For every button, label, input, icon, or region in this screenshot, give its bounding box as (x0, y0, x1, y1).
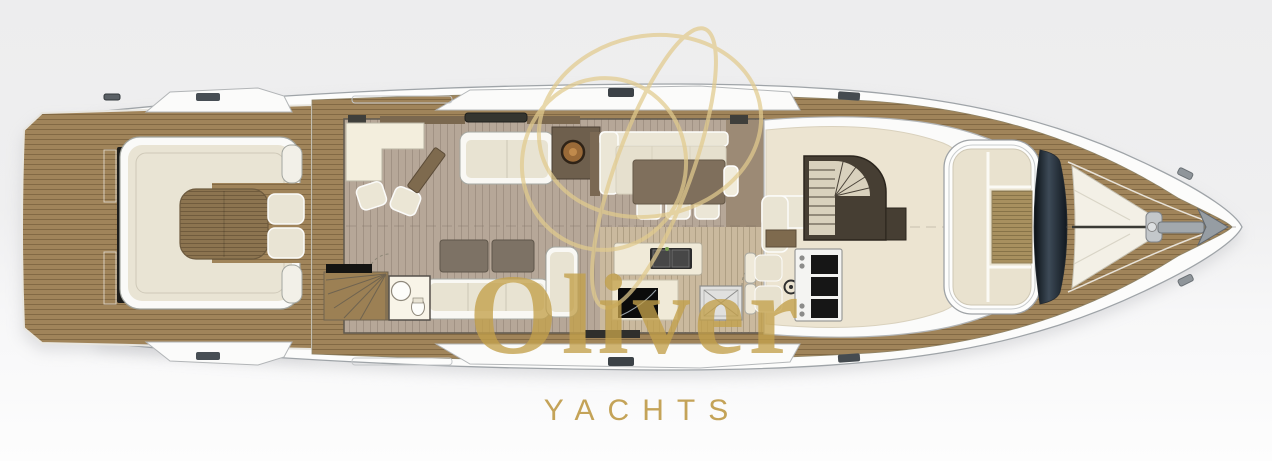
stairs-down-aft (324, 264, 388, 320)
helm-seat (745, 253, 782, 283)
bow-lounge (944, 140, 1040, 314)
helm-seat (745, 284, 782, 314)
cleat-icon (196, 93, 220, 101)
deck-plan-drawing (0, 0, 1272, 461)
display-screen (811, 277, 838, 296)
sink-icon (392, 282, 411, 301)
aft-deck-lounge (117, 137, 306, 309)
cleat-icon (838, 91, 861, 101)
windshield-glass (1034, 150, 1067, 304)
tv-screen (618, 288, 658, 318)
faucet-icon (665, 247, 669, 251)
salon (324, 113, 774, 338)
bow-table (992, 191, 1032, 263)
cleat-icon (196, 352, 220, 360)
ottoman (268, 228, 304, 258)
cleat-icon (1177, 167, 1194, 180)
helm-console (795, 249, 842, 321)
deck-hatch (700, 286, 742, 320)
stair-handrail (326, 264, 372, 273)
side-table (766, 230, 796, 247)
lounge-chair (546, 247, 578, 317)
cleat-icon (608, 357, 634, 366)
display-screen (811, 255, 838, 274)
cleat-icon (104, 94, 120, 100)
coffee-table (492, 240, 534, 272)
cleat-icon (608, 88, 634, 97)
coffee-table (440, 240, 488, 272)
aft-table (180, 189, 268, 259)
display-screen (811, 299, 838, 318)
ottoman (268, 194, 304, 224)
cleat-icon (838, 353, 861, 363)
yacht-deck-plan-page: Oliver YACHTS (0, 0, 1272, 461)
salon-sofa-starboard (424, 279, 550, 319)
